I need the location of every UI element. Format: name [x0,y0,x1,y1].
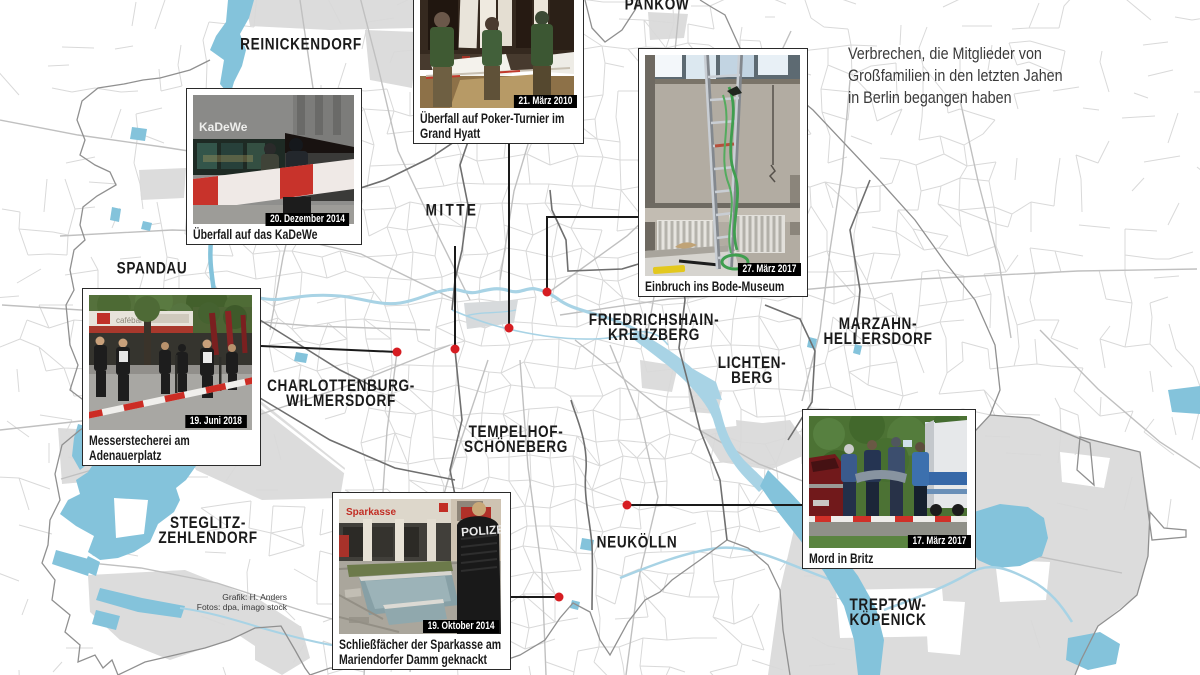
svg-text:Sparkasse: Sparkasse [346,507,396,518]
svg-text:KaDeWe: KaDeWe [199,120,248,134]
svg-text:POLIZE: POLIZE [461,522,501,539]
